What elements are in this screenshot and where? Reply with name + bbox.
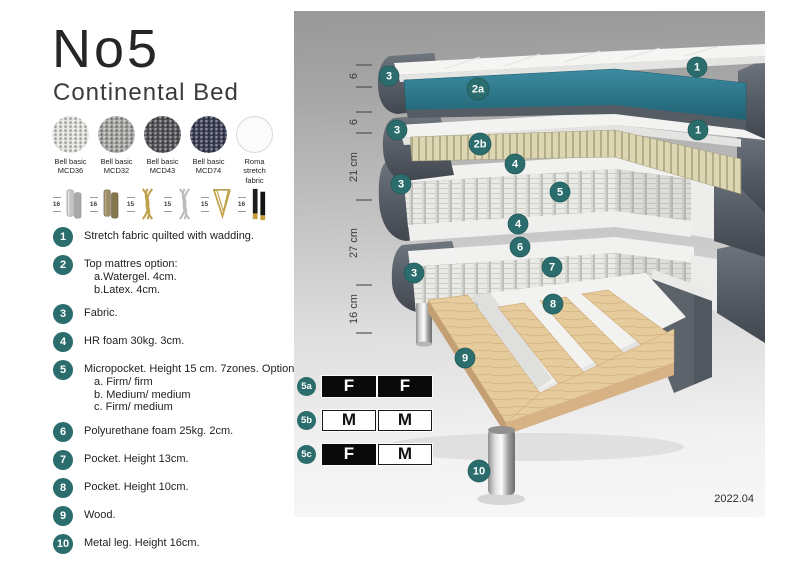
list-number-badge: 6 [53, 422, 73, 442]
fabric-swatch-circle [190, 116, 227, 153]
list-number-badge: 9 [53, 506, 73, 526]
fabric-swatch-label: Bell basicMCD32 [96, 157, 137, 176]
badge-7: 7 [542, 257, 562, 277]
swatch-bell-basic-mcd74: Bell basicMCD74 [188, 116, 229, 185]
fabric-swatches: Bell basicMCD36 Bell basicMCD32 Bell bas… [50, 116, 275, 185]
svg-text:6: 6 [517, 242, 523, 254]
svg-text:2b: 2b [474, 139, 487, 151]
firmness-option-badge: 5b [297, 411, 316, 430]
badge-3-layer3: 3 [391, 174, 411, 194]
swatch-bell-basic-mcd36: Bell basicMCD36 [50, 116, 91, 185]
svg-text:3: 3 [398, 179, 404, 191]
badge-10: 10 [468, 460, 490, 482]
ruler-label: 27 cm [348, 228, 360, 258]
svg-text:4: 4 [512, 159, 519, 171]
leg-option-5: 15 [198, 187, 231, 221]
page-subtitle: Continental Bed [53, 79, 239, 107]
svg-text:3: 3 [394, 125, 400, 137]
twisted-silver-legs-icon [175, 187, 194, 221]
badge-3-topper: 3 [379, 66, 399, 86]
list-number-badge: 1 [53, 227, 73, 247]
badge-9: 9 [455, 348, 475, 368]
badge-2b: 2b [469, 133, 491, 155]
fabric-swatch-circle [98, 116, 135, 153]
swatch-bell-basic-mcd32: Bell basicMCD32 [96, 116, 137, 185]
firmness-option-badge: 5a [297, 377, 316, 396]
leg-option-3: 15 [124, 187, 157, 221]
firmness-row-5a: 5a F F [295, 375, 433, 397]
ruler-label: 16 cm [348, 294, 360, 324]
list-number-badge: 7 [53, 450, 73, 470]
hairpin-gold-leg-icon [212, 187, 231, 221]
svg-text:5: 5 [557, 187, 563, 199]
svg-text:3: 3 [411, 268, 417, 280]
list-number-badge: 8 [53, 478, 73, 498]
list-item: 4 HR foam 30kg. 3cm. [53, 334, 309, 352]
list-item: 6 Polyurethane foam 25kg. 2cm. [53, 424, 309, 442]
list-number-badge: 3 [53, 304, 73, 324]
list-item: 7 Pocket. Height 13cm. [53, 452, 309, 470]
fabric-swatch-circle [144, 116, 181, 153]
ruler-label: 21 cm [348, 152, 360, 182]
list-item: 3 Fabric. [53, 306, 309, 324]
firmness-cell: F [378, 376, 432, 397]
badge-4-upper: 4 [505, 154, 525, 174]
fabric-swatch-label: Bell basicMCD36 [50, 157, 91, 176]
badge-2a: 2a [467, 78, 489, 100]
leg-option-2: 16 [87, 187, 120, 221]
fabric-swatch-circle [52, 116, 89, 153]
diagram-panel: 6 6 21 cm 27 cm 16 cm [294, 11, 765, 517]
leg-option-4: 15 [161, 187, 194, 221]
svg-text:1: 1 [694, 62, 700, 74]
svg-text:3: 3 [386, 71, 392, 83]
cylinder-wood-legs-icon [101, 187, 120, 221]
firmness-cell: M [322, 410, 376, 431]
firmness-cell: F [322, 376, 376, 397]
list-item: 10 Metal leg. Height 16cm. [53, 536, 309, 554]
badge-1-topper: 1 [687, 57, 707, 77]
spec-list: 1 Stretch fabric quilted with wadding. 2… [53, 229, 309, 564]
cylinder-silver-legs-icon [64, 187, 83, 221]
svg-text:9: 9 [462, 353, 468, 365]
version-label: 2022.04 [714, 493, 754, 505]
badge-4-lower: 4 [508, 214, 528, 234]
list-item: 9 Wood. [53, 508, 309, 526]
fabric-swatch-circle [236, 116, 273, 153]
leg-options: 16 16 15 15 15 16 [50, 184, 268, 224]
svg-text:7: 7 [549, 262, 555, 274]
badge-5: 5 [550, 182, 570, 202]
twisted-gold-legs-icon [138, 187, 157, 221]
list-number-badge: 5 [53, 360, 73, 380]
badge-6: 6 [510, 237, 530, 257]
firmness-cell: M [378, 410, 432, 431]
page-title: No5 [52, 22, 160, 76]
list-item: 1 Stretch fabric quilted with wadding. [53, 229, 309, 247]
fabric-swatch-label: Bell basicMCD74 [188, 157, 229, 176]
dimension-ruler: 6 6 21 cm 27 cm 16 cm [348, 65, 372, 333]
firmness-cell: M [378, 444, 432, 465]
badge-8: 8 [543, 294, 563, 314]
leg-option-6: 16 [235, 187, 268, 221]
firmness-row-5b: 5b M M [295, 409, 433, 431]
fabric-swatch-label: Romastretch fabric [234, 157, 275, 185]
list-number-badge: 2 [53, 255, 73, 275]
ruler-label: 6 [348, 119, 360, 125]
svg-text:1: 1 [695, 125, 701, 137]
firmness-table: 5a F F 5b M M 5c F M [295, 375, 433, 477]
list-item: 2 Top mattres option: a.Watergel. 4cm. b… [53, 257, 309, 296]
svg-text:2a: 2a [472, 84, 485, 96]
svg-text:8: 8 [550, 299, 556, 311]
list-number-badge: 10 [53, 534, 73, 554]
fabric-swatch-label: Bell basicMCD43 [142, 157, 183, 176]
badge-3-layer2: 3 [387, 120, 407, 140]
list-number-badge: 4 [53, 332, 73, 352]
ruler-label: 6 [348, 73, 360, 79]
badge-1-layer2: 1 [688, 120, 708, 140]
badge-3-layer4: 3 [404, 263, 424, 283]
leg-option-1: 16 [50, 187, 83, 221]
firmness-row-5c: 5c F M [295, 443, 433, 465]
list-item: 8 Pocket. Height 10cm. [53, 480, 309, 498]
list-item: 5 Micropocket. Height 15 cm. 7zones. Opt… [53, 362, 309, 414]
swatch-bell-basic-mcd43: Bell basicMCD43 [142, 116, 183, 185]
svg-text:10: 10 [473, 466, 485, 478]
swatch-roma-stretch: Romastretch fabric [234, 116, 275, 185]
svg-text:4: 4 [515, 219, 522, 231]
firmness-cell: F [322, 444, 376, 465]
firmness-option-badge: 5c [297, 445, 316, 464]
black-gold-legs-icon [249, 187, 268, 221]
